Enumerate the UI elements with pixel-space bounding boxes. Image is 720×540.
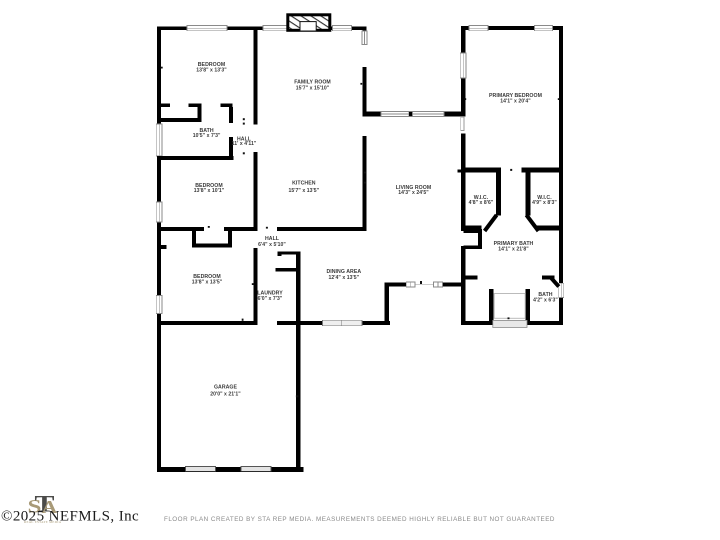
svg-text:©2025 NEFMLS, Inc: ©2025 NEFMLS, Inc xyxy=(1,509,139,525)
